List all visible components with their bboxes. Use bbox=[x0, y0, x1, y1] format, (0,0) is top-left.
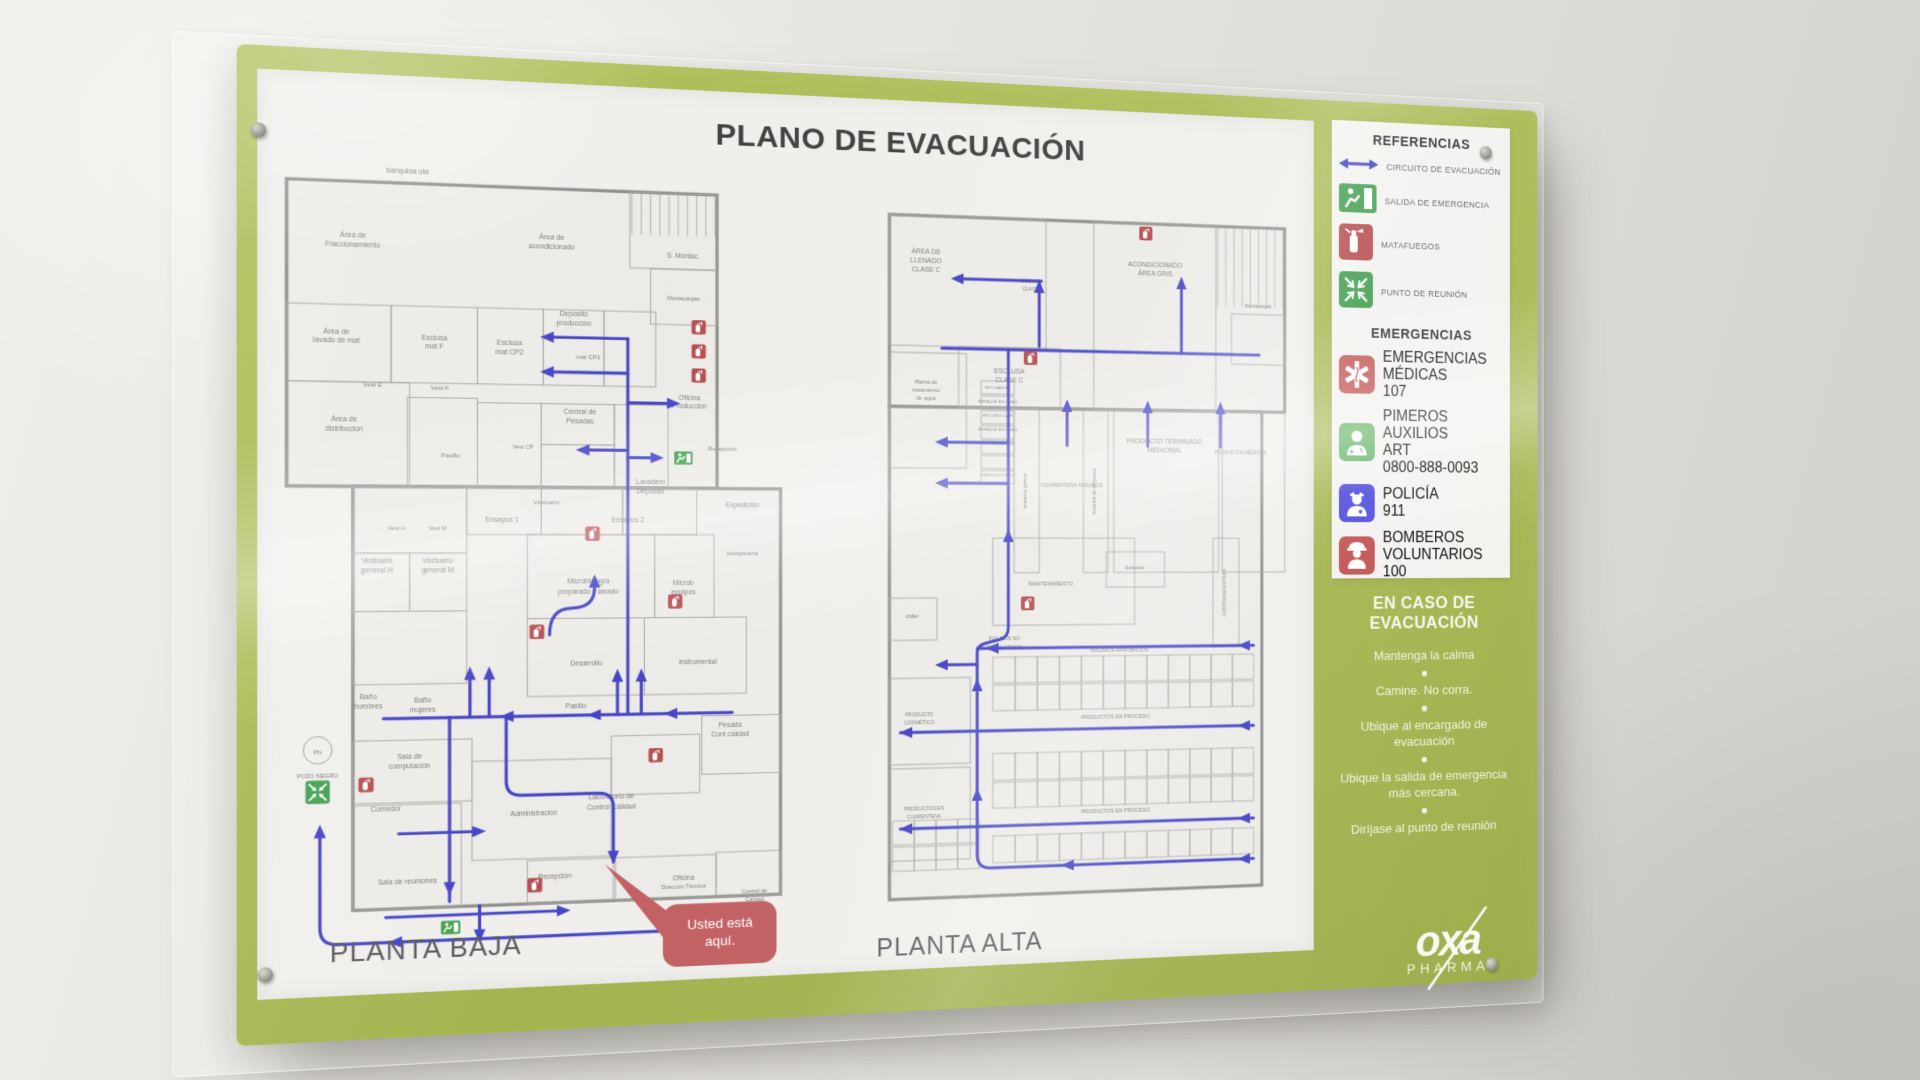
floor-label-planta-alta: PLANTA ALTA bbox=[876, 927, 1042, 963]
sidebar-column: REFERENCIAS CIRCUITO DE EVACUACIÓN bbox=[1319, 100, 1537, 990]
svg-text:CLASE C: CLASE C bbox=[912, 266, 941, 274]
svg-text:Planta de: Planta de bbox=[915, 380, 938, 386]
svg-text:POZO NEGRO: POZO NEGRO bbox=[297, 773, 339, 780]
svg-text:INSUMOS APROBADOS: INSUMOS APROBADOS bbox=[1090, 648, 1148, 654]
fire-extinguisher-icon bbox=[649, 748, 663, 762]
emergency-item-text: EMERGENCIAS MÉDICAS 107 bbox=[1383, 349, 1503, 402]
fire-extinguisher-icon bbox=[358, 777, 373, 792]
meeting-point-icon bbox=[305, 780, 329, 804]
standoff-screw bbox=[250, 122, 266, 138]
svg-text:PRODUCTOS MÉDICOS: PRODUCTOS MÉDICOS bbox=[1215, 449, 1267, 456]
fire-extinguisher-icon bbox=[530, 625, 545, 639]
fire-extinguisher-icon bbox=[692, 344, 706, 358]
svg-text:Recepción: Recepción bbox=[538, 873, 572, 881]
fire-extinguisher-icon bbox=[1021, 596, 1035, 610]
legend-item-label: SALIDA DE EMERGENCIA bbox=[1385, 196, 1490, 212]
building-layer bbox=[889, 214, 1284, 899]
svg-text:Usted está: Usted está bbox=[687, 914, 753, 932]
bullet-separator bbox=[1422, 757, 1427, 763]
svg-text:Oficina: Oficina bbox=[673, 874, 695, 882]
instruction-step: Camine. No corra. bbox=[1332, 682, 1515, 701]
svg-text:EMPAQUE RVO DIAG: EMPAQUE RVO DIAG bbox=[978, 427, 1017, 432]
emergency-exit-icon bbox=[674, 451, 692, 464]
fire-extinguisher-icon bbox=[1339, 223, 1373, 265]
instruction-step: Ubique al encargado de evacuación bbox=[1332, 716, 1515, 752]
svg-text:Vestuario: Vestuario bbox=[422, 558, 453, 565]
instruction-step: Mantenga la calma bbox=[1332, 647, 1515, 665]
svg-text:banquina uta: banquina uta bbox=[386, 167, 429, 176]
svg-text:computación: computación bbox=[389, 763, 431, 771]
route-arrow bbox=[314, 825, 326, 839]
instruction-step: Ubique la salida de emergencia más cerca… bbox=[1332, 767, 1515, 804]
wall-background: PLANO DE EVACUACIÓN banquina utaÁrea deF… bbox=[0, 0, 1920, 1080]
svg-text:aquí.: aquí. bbox=[705, 933, 735, 949]
legend-panel: REFERENCIAS CIRCUITO DE EVACUACIÓN bbox=[1332, 120, 1510, 579]
fire-extinguisher-icon bbox=[692, 320, 706, 334]
emergency-item-text: PIMEROS AUXILIOS ART 0800-888-0093 bbox=[1383, 408, 1503, 477]
svg-text:CUARENTENA INSUMOS: CUARENTENA INSUMOS bbox=[1041, 483, 1103, 489]
svg-text:Ensayos 1: Ensayos 1 bbox=[485, 517, 519, 524]
svg-text:Pasillo: Pasillo bbox=[565, 703, 586, 710]
emergency-exit-icon bbox=[1339, 183, 1377, 218]
svg-text:Vestuario: Vestuario bbox=[362, 558, 393, 565]
svg-text:PN: PN bbox=[313, 750, 321, 756]
police-icon bbox=[1339, 484, 1375, 522]
svg-text:Administración: Administración bbox=[510, 810, 557, 818]
svg-text:Montacargas: Montacargas bbox=[667, 296, 700, 303]
legend-item-label: MATAFUEGOS bbox=[1381, 239, 1440, 253]
svg-text:Microb: Microb bbox=[673, 580, 694, 587]
svg-text:materias primas: materias primas bbox=[1023, 473, 1029, 509]
svg-text:mat CP1: mat CP1 bbox=[576, 355, 601, 362]
floor-plan-planta-alta: ÁREA DELLENADOCLASE CESCLUSACLASE CESCLU… bbox=[874, 206, 1293, 911]
evacuation-instructions: EN CASO DE EVACUACIÓN Mantenga la calma … bbox=[1332, 593, 1515, 846]
fire-extinguisher-icon bbox=[1139, 226, 1152, 240]
building-layer bbox=[287, 179, 781, 913]
fire-extinguisher-icon bbox=[1024, 351, 1038, 365]
svg-text:CONTRAMUESTRAS: CONTRAMUESTRAS bbox=[1222, 568, 1227, 616]
svg-text:de agua: de agua bbox=[916, 396, 936, 402]
svg-text:Baño: Baño bbox=[360, 694, 378, 702]
bullet-separator bbox=[1422, 706, 1427, 712]
legend-item-label: CIRCUITO DE EVACUACIÓN bbox=[1386, 162, 1500, 179]
svg-text:distribución: distribución bbox=[325, 425, 363, 433]
emergency-item-text: POLICÍA 911 bbox=[1383, 486, 1439, 520]
svg-text:Control Calidad: Control Calidad bbox=[587, 803, 636, 811]
fire-extinguisher-icon bbox=[668, 594, 682, 608]
svg-text:MEDICINAL: MEDICINAL bbox=[1147, 448, 1182, 455]
svg-text:Comedor: Comedor bbox=[370, 806, 401, 814]
legend-item-meeting-point: PUNTO DE REUNIÓN bbox=[1339, 271, 1503, 317]
svg-text:Vest E: Vest E bbox=[363, 382, 382, 389]
svg-text:Desarrollo: Desarrollo bbox=[570, 660, 602, 667]
svg-text:Esclusa: Esclusa bbox=[422, 334, 448, 342]
emergency-item-medical: EMERGENCIAS MÉDICAS 107 bbox=[1339, 348, 1503, 402]
svg-text:RVO DIAG SE: RVO DIAG SE bbox=[985, 385, 1010, 390]
fire-extinguisher-icon bbox=[527, 878, 542, 893]
svg-text:Vest CP: Vest CP bbox=[513, 444, 534, 450]
instruction-step: Diríjase al punto de reunión bbox=[1332, 817, 1515, 839]
legend-item-circuit: CIRCUITO DE EVACUACIÓN bbox=[1339, 154, 1503, 183]
svg-text:general M: general M bbox=[421, 568, 454, 575]
svg-text:Central de: Central de bbox=[564, 409, 597, 417]
svg-text:Vest F: Vest F bbox=[431, 385, 450, 391]
svg-text:Vest H: Vest H bbox=[388, 526, 406, 532]
svg-text:PRODUCTOS EN: PRODUCTOS EN bbox=[904, 806, 944, 813]
svg-text:Recepción: Recepción bbox=[708, 446, 737, 452]
svg-text:PRODUCTO TERMINADO: PRODUCTO TERMINADO bbox=[1126, 438, 1203, 446]
svg-text:Lavadero: Lavadero bbox=[636, 479, 665, 486]
svg-text:LLENADO: LLENADO bbox=[910, 257, 942, 265]
fire-extinguisher-icon bbox=[692, 368, 706, 382]
svg-text:Heladera: Heladera bbox=[1125, 566, 1144, 572]
svg-text:Pesada: Pesada bbox=[719, 722, 742, 729]
sign-scene: PLANO DE EVACUACIÓN banquina utaÁrea deF… bbox=[237, 44, 1538, 1046]
instructions-heading: EN CASO DE EVACUACIÓN bbox=[1332, 593, 1515, 634]
emergency-item-text: BOMBEROS VOLUNTARIOS 100 bbox=[1383, 530, 1503, 581]
svg-text:PRODUCTO: PRODUCTO bbox=[905, 712, 933, 718]
firefighters-icon bbox=[1339, 536, 1375, 574]
svg-text:Vest M: Vest M bbox=[429, 526, 447, 532]
svg-text:Esclusa: Esclusa bbox=[497, 340, 522, 348]
svg-text:Área de: Área de bbox=[331, 414, 357, 424]
floor-plan-planta-baja: banquina utaÁrea deFraccionamientoÁrea d… bbox=[275, 134, 782, 993]
legend-item-exit: SALIDA DE EMERGENCIA bbox=[1339, 183, 1503, 223]
bullet-separator bbox=[1422, 807, 1427, 813]
svg-text:Oficina: Oficina bbox=[679, 395, 701, 402]
svg-text:general H: general H bbox=[361, 568, 393, 575]
emergency-item-first-aid: PIMEROS AUXILIOS ART 0800-888-0093 bbox=[1339, 408, 1503, 478]
svg-text:acondicionado: acondicionado bbox=[529, 243, 575, 252]
first-aid-icon bbox=[1339, 423, 1375, 462]
svg-text:Pesadas: Pesadas bbox=[566, 418, 594, 425]
svg-text:preparado y lavado: preparado y lavado bbox=[558, 589, 619, 596]
emergency-exit-icon bbox=[441, 920, 460, 934]
svg-text:producción: producción bbox=[556, 320, 591, 328]
svg-text:Instrumental: Instrumental bbox=[679, 658, 718, 665]
svg-text:mujeres: mujeres bbox=[410, 706, 437, 714]
svg-text:Vestuario: Vestuario bbox=[533, 500, 560, 506]
svg-text:EMPAQUE RVO DIAG: EMPAQUE RVO DIAG bbox=[978, 399, 1017, 404]
svg-text:Depósito: Depósito bbox=[560, 311, 588, 319]
svg-text:mat F: mat F bbox=[425, 344, 444, 352]
emergency-item-firefighters: BOMBEROS VOLUNTARIOS 100 bbox=[1339, 530, 1503, 582]
svg-text:COSMÉTICO: COSMÉTICO bbox=[904, 719, 934, 726]
bullet-separator bbox=[1422, 671, 1427, 677]
medical-emergency-icon bbox=[1339, 355, 1375, 394]
plan-panel: PLANO DE EVACUACIÓN banquina utaÁrea deF… bbox=[257, 69, 1313, 1000]
evacuation-sign-photo: { "sign": { "title": "PLANO DE EVACUACIÓ… bbox=[0, 0, 1920, 1080]
svg-text:Baño: Baño bbox=[414, 697, 431, 704]
svg-text:Montacargas: Montacargas bbox=[1245, 304, 1272, 310]
meeting-point-icon bbox=[1339, 271, 1373, 313]
svg-text:chiller: chiller bbox=[906, 614, 919, 620]
evacuation-circuit-icon bbox=[1339, 154, 1378, 178]
svg-text:marquesina: marquesina bbox=[727, 551, 759, 557]
svg-text:hombres: hombres bbox=[354, 703, 383, 711]
svg-text:Expedición: Expedición bbox=[726, 502, 760, 509]
svg-text:MANTENIMIENTO: MANTENIMIENTO bbox=[1029, 582, 1074, 588]
legend-item-extinguisher: MATAFUEGOS bbox=[1339, 223, 1503, 269]
svg-text:lavado de mat: lavado de mat bbox=[313, 337, 360, 345]
legend-title: REFERENCIAS bbox=[1339, 132, 1503, 155]
svg-text:CUARENTENA: CUARENTENA bbox=[907, 814, 942, 821]
svg-text:Microbiología: Microbiología bbox=[567, 578, 609, 585]
fire-extinguisher-icon bbox=[585, 526, 600, 540]
svg-text:Control de: Control de bbox=[742, 889, 767, 896]
svg-text:Sala de: Sala de bbox=[397, 753, 422, 761]
svg-text:S. Montac.: S. Montac. bbox=[667, 253, 700, 261]
legend-item-label: PUNTO DE REUNIÓN bbox=[1381, 287, 1467, 301]
svg-text:tratamiento: tratamiento bbox=[913, 388, 940, 394]
evacuation-sign-board: PLANO DE EVACUACIÓN banquina utaÁrea deF… bbox=[237, 44, 1538, 1046]
standoff-screw bbox=[1480, 146, 1492, 160]
svg-text:Depósito: Depósito bbox=[637, 488, 665, 495]
route-arrow bbox=[557, 905, 571, 917]
svg-text:mat CP2: mat CP2 bbox=[495, 349, 523, 357]
emergency-item-police: POLICÍA 911 bbox=[1339, 484, 1503, 523]
svg-text:Cont calidad: Cont calidad bbox=[711, 731, 749, 739]
svg-text:Pasillo: Pasillo bbox=[441, 454, 461, 460]
emergencies-title: EMERGENCIAS bbox=[1339, 325, 1503, 344]
svg-text:material de empaque: material de empaque bbox=[1092, 468, 1098, 514]
